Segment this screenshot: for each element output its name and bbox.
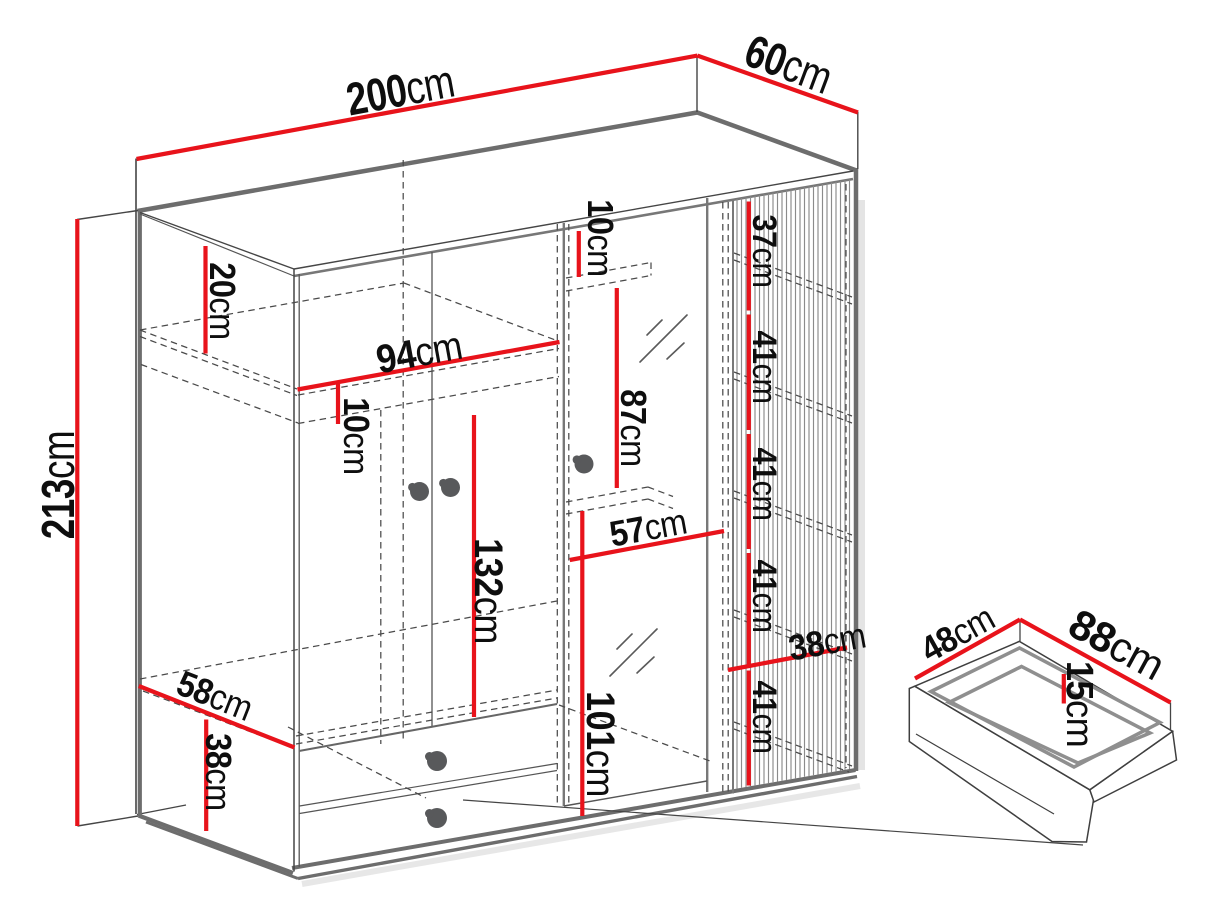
svg-text:15cm: 15cm [1059, 661, 1102, 747]
svg-text:41cm: 41cm [746, 559, 784, 632]
svg-text:37cm: 37cm [746, 214, 784, 287]
svg-text:87cm: 87cm [613, 389, 653, 466]
svg-text:41cm: 41cm [746, 447, 784, 520]
svg-text:41cm: 41cm [746, 680, 784, 753]
svg-text:213cm: 213cm [32, 431, 84, 539]
svg-text:38cm: 38cm [198, 733, 238, 810]
svg-text:10cm: 10cm [580, 199, 620, 276]
svg-text:41cm: 41cm [746, 330, 784, 403]
svg-text:20cm: 20cm [202, 262, 242, 339]
svg-text:10cm: 10cm [336, 397, 376, 474]
svg-text:132cm: 132cm [466, 538, 510, 644]
svg-text:101cm: 101cm [578, 691, 622, 797]
